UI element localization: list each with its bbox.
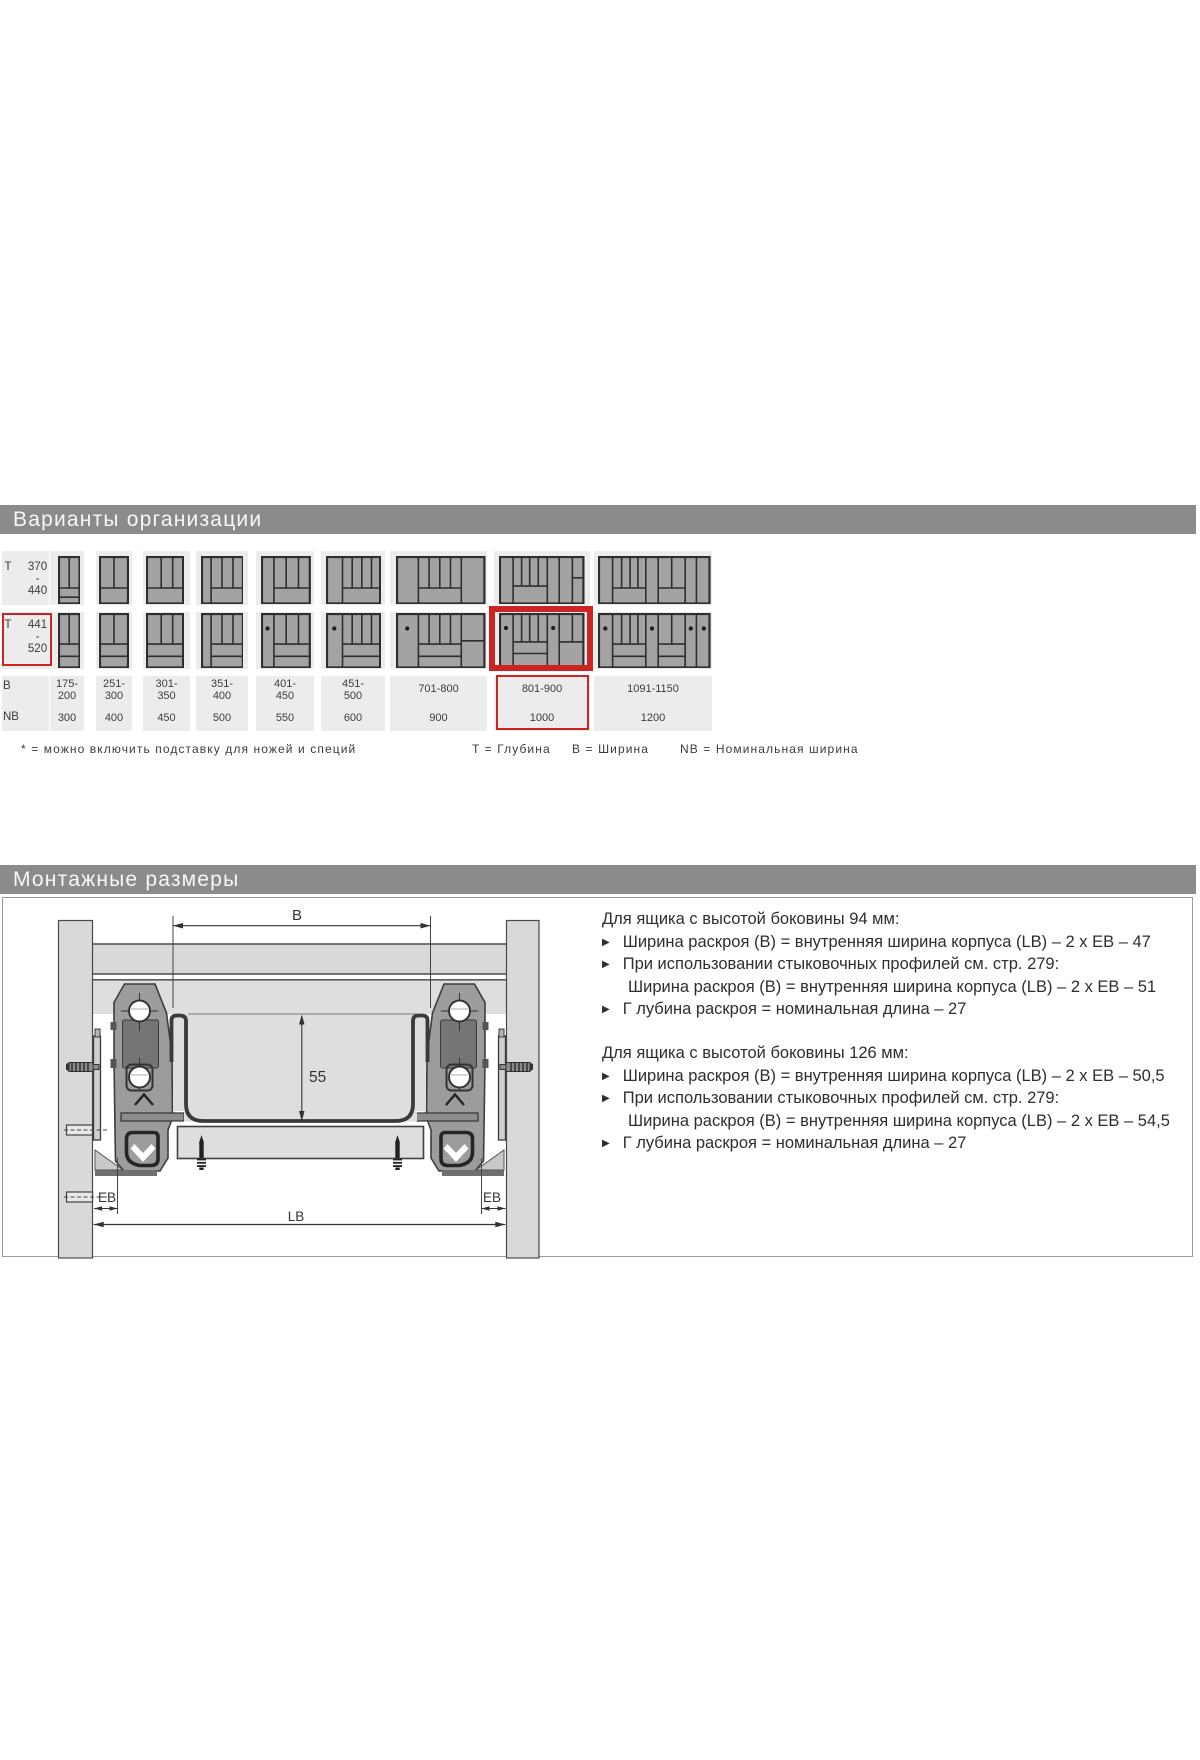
svg-text:B: B — [292, 907, 302, 924]
svg-text:EB: EB — [483, 1190, 501, 1205]
svg-text:EB: EB — [98, 1190, 116, 1205]
svg-text:LB: LB — [288, 1209, 305, 1224]
svg-text:55: 55 — [309, 1069, 326, 1086]
